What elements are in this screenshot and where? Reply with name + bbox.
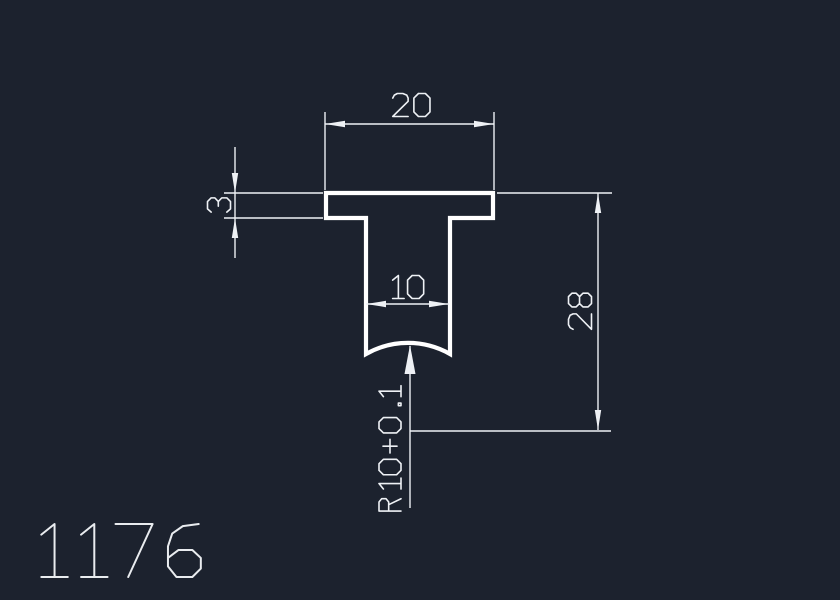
dimension-top-width [325,94,494,191]
dimension-label-flange-thickness [208,198,231,212]
arrowhead-up-icon [405,345,416,374]
dimension-label-groove-radius [379,386,401,511]
arrowhead-down-icon [232,173,238,193]
dimension-label-stem-width [393,276,424,299]
dimension-overall-height [410,193,612,431]
dimension-groove-radius [379,345,416,511]
dimension-label-overall-height [569,293,592,329]
t-profile-path [326,193,493,354]
part-number-label [41,524,201,577]
arrowhead-right-icon [429,301,449,307]
arrowhead-up-icon [232,218,238,238]
cad-drawing [0,0,840,600]
arrowhead-left-icon [366,301,386,307]
part-number [41,524,201,577]
arrowhead-up-icon [595,193,601,213]
t-profile-outline [326,193,493,354]
arrowhead-right-icon [474,121,494,127]
arrowhead-left-icon [325,121,345,127]
dimension-stem-width [366,276,449,308]
dimension-label-top-width [393,94,430,117]
arrowhead-down-icon [595,410,601,430]
cad-drawing-canvas [0,0,840,600]
dimension-flange-thickness [208,147,324,258]
